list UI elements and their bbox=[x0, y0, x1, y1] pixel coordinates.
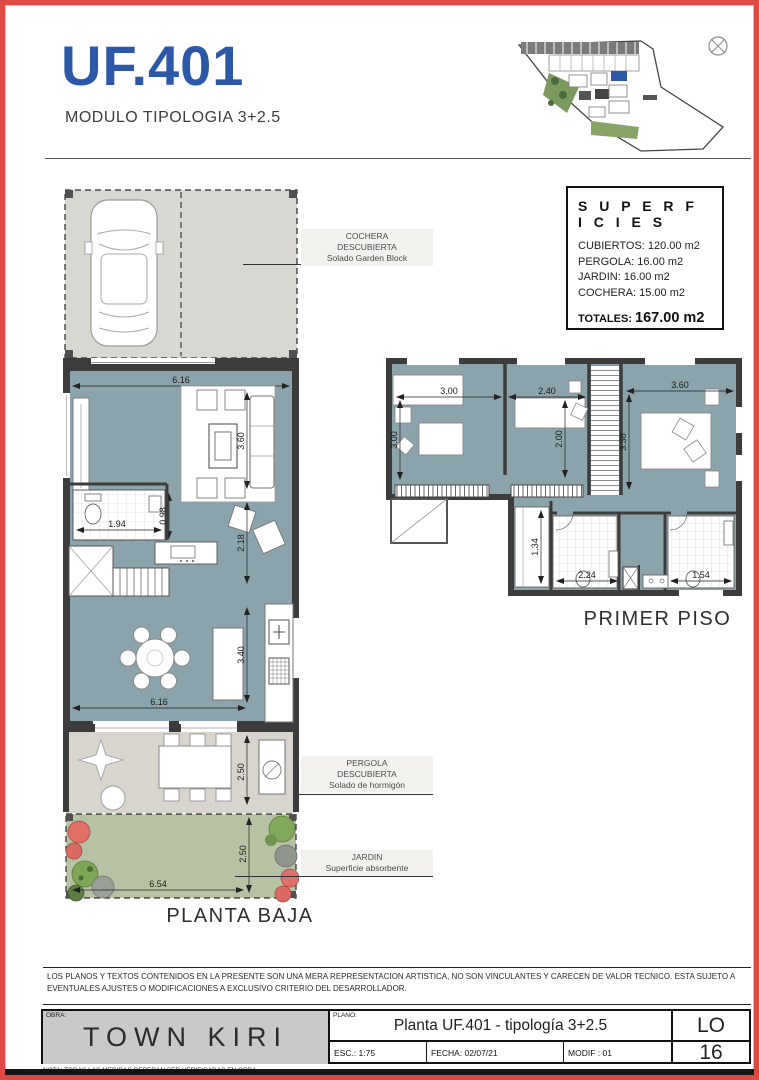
toilet bbox=[85, 504, 101, 524]
site-key-plan bbox=[491, 29, 736, 157]
outdoor-table bbox=[159, 746, 231, 788]
annotation-line: JARDIN bbox=[304, 852, 430, 863]
car-top-view bbox=[85, 200, 163, 346]
dim-label: 3.60 bbox=[671, 380, 689, 390]
annotation-jardin: JARDIN Superficie absorbente bbox=[301, 850, 433, 876]
superficies-panel: S U P E R F I C I E S CUBIERTOS: 120.00 … bbox=[566, 186, 724, 330]
dim-label: 1.54 bbox=[692, 570, 710, 580]
plan-label-planta-baja: PLANTA BAJA bbox=[135, 905, 345, 928]
annotation-line: Solado Garden Block bbox=[304, 253, 430, 264]
obra-cell: OBRA: TOWN KIRI bbox=[43, 1011, 330, 1064]
dim-label: 2.24 bbox=[578, 570, 596, 580]
dim-label: 3.38 bbox=[618, 433, 628, 451]
esc-field: ESC.: 1:75 bbox=[330, 1042, 427, 1064]
dim-label: 2.50 bbox=[236, 763, 246, 781]
annotation-cochera: COCHERA DESCUBIERTA Solado Garden Block bbox=[301, 229, 433, 266]
dim-label: 3.00 bbox=[389, 431, 399, 449]
vanity bbox=[155, 542, 217, 564]
superficies-total-label: TOTALES: bbox=[578, 313, 632, 325]
title-block: OBRA: TOWN KIRI PLANO: Planta UF.401 - t… bbox=[41, 1009, 751, 1064]
dim-label: 2.50 bbox=[238, 845, 248, 863]
sink bbox=[724, 521, 733, 545]
dim-label: 6.16 bbox=[172, 375, 190, 385]
annotation-pergola: PERGOLA DESCUBIERTA Solado de hormigón bbox=[301, 756, 433, 793]
header-divider bbox=[45, 158, 751, 159]
main-floor-area: 6.16 3.60 2.18 bbox=[63, 368, 299, 730]
obra-label: OBRA: bbox=[46, 1012, 66, 1019]
annotation-leader-line bbox=[235, 876, 433, 877]
annotation-line: COCHERA bbox=[304, 231, 430, 242]
plano-cell: PLANO: Planta UF.401 - tipología 3+2.5 E… bbox=[330, 1011, 671, 1064]
washbasin bbox=[643, 575, 671, 588]
louver-windows bbox=[395, 485, 583, 497]
bathroom-2: 1.54 bbox=[668, 513, 734, 588]
plan-planta-baja: 6.16 3.60 2.18 bbox=[63, 188, 299, 904]
superficies-item: JARDIN: 16.00 m2 bbox=[578, 270, 713, 286]
plano-title: Planta UF.401 - tipología 3+2.5 bbox=[394, 1017, 607, 1035]
superficies-item: COCHERA: 15.00 m2 bbox=[578, 286, 713, 302]
superficies-total: TOTALES: 167.00 m2 bbox=[578, 310, 713, 326]
dim-label: 3.40 bbox=[236, 646, 246, 664]
dim-label: 2.18 bbox=[236, 534, 246, 552]
sheet-code-bottom: 16 bbox=[673, 1040, 749, 1064]
dim-label: 2.40 bbox=[538, 386, 556, 396]
superficies-title: S U P E R F I C I E S bbox=[578, 198, 713, 230]
disclaimer-rule-top bbox=[43, 967, 751, 968]
disclaimer-text: LOS PLANOS Y TEXTOS CONTENIDOS EN LA PRE… bbox=[47, 971, 747, 994]
bathroom-ground: 1.94 0.98 bbox=[73, 490, 169, 540]
plano-label: PLANO: bbox=[333, 1012, 357, 1019]
fecha-field: FECHA: 02/07/21 bbox=[427, 1042, 564, 1064]
sink bbox=[609, 551, 618, 577]
bathroom-1: 2.24 bbox=[553, 513, 618, 588]
plan-label-primer-piso: PRIMER PISO bbox=[575, 608, 740, 631]
disclaimer-rule-bottom bbox=[43, 1004, 751, 1005]
compass-icon bbox=[709, 37, 727, 55]
drawing-sheet: UF.401 MODULO TIPOLOGIA 3+2.5 bbox=[0, 0, 759, 1080]
stairs-upper bbox=[591, 365, 619, 495]
annotation-line: Solado de hormigón bbox=[304, 780, 430, 791]
dim-label: 1.94 bbox=[108, 519, 126, 529]
sheet-edge-bar bbox=[5, 1069, 754, 1075]
annotation-line: DESCUBIERTA bbox=[304, 242, 430, 253]
superficies-total-value: 167.00 m2 bbox=[635, 310, 704, 326]
annotation-line: Superficie absorbente bbox=[304, 863, 430, 874]
annotation-line: DESCUBIERTA bbox=[304, 769, 430, 780]
dim-label: 3.60 bbox=[236, 432, 246, 450]
superficies-item: PERGOLA: 16.00 m2 bbox=[578, 255, 713, 271]
site-highlight-unit bbox=[611, 71, 627, 81]
dining-table bbox=[136, 639, 174, 677]
superficies-item: CUBIERTOS: 120.00 m2 bbox=[578, 239, 713, 255]
annotation-leader-line bbox=[299, 794, 433, 795]
annotation-line: PERGOLA bbox=[304, 758, 430, 769]
dim-label: 3.00 bbox=[440, 386, 458, 396]
page-subtitle: MODULO TIPOLOGIA 3+2.5 bbox=[65, 109, 281, 127]
modif-field: MODIF : 01 bbox=[564, 1042, 671, 1064]
dim-label: 6.16 bbox=[150, 697, 168, 707]
sheet-code-cell: LO 16 bbox=[671, 1011, 749, 1064]
pergola-area: 2.50 bbox=[63, 724, 299, 813]
sheet-code-top: LO bbox=[673, 1011, 749, 1040]
closet-room: 1.34 bbox=[515, 507, 549, 587]
plan-primer-piso: 1.34 2.24 1.54 3.00 3.00 bbox=[383, 355, 751, 605]
dim-label: 6.54 bbox=[149, 879, 167, 889]
planter-pot bbox=[101, 786, 125, 810]
dim-label: 1.34 bbox=[530, 538, 540, 556]
jardin-area: 2.50 6.54 bbox=[66, 814, 299, 902]
cochera-area bbox=[63, 190, 299, 367]
dim-label: 2.00 bbox=[554, 430, 564, 448]
project-name: TOWN KIRI bbox=[83, 1022, 288, 1053]
page-title: UF.401 bbox=[61, 33, 244, 98]
